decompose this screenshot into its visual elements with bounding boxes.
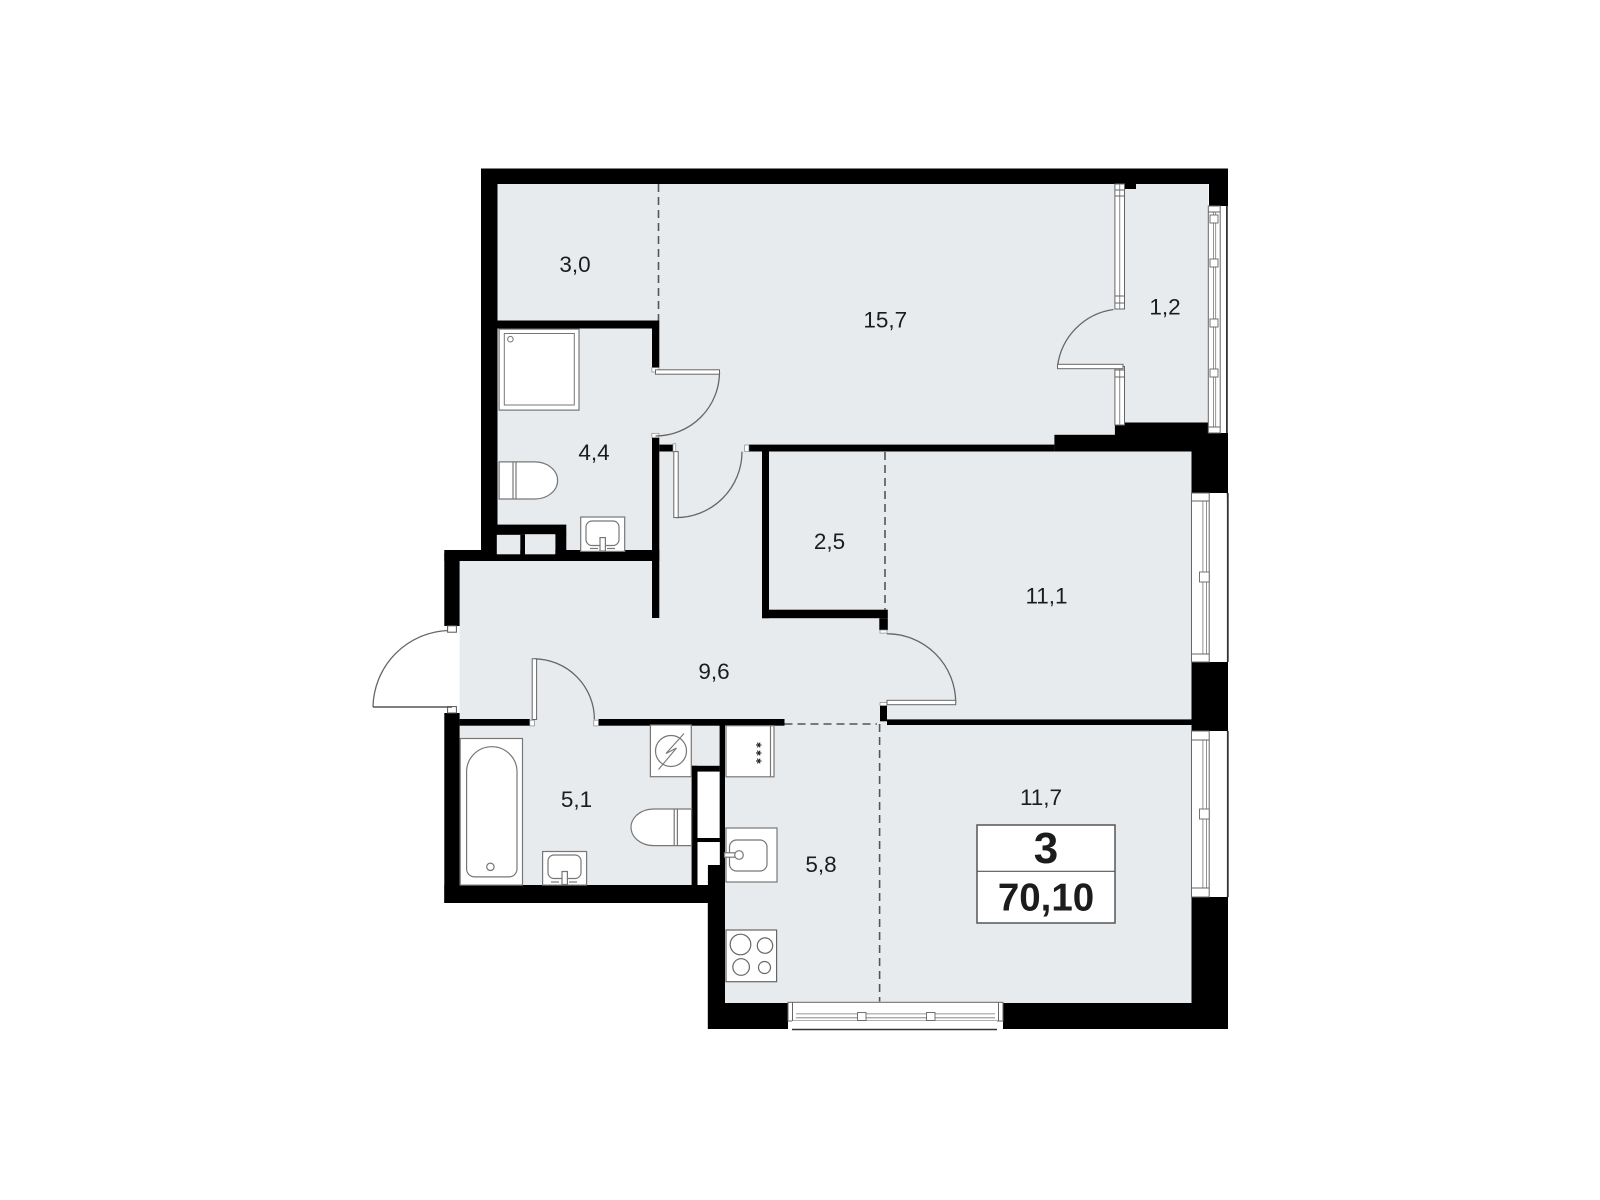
svg-text:5,1: 5,1 [561,787,592,812]
svg-text:2,5: 2,5 [814,529,845,554]
svg-text:3: 3 [1034,824,1058,873]
svg-text:4,4: 4,4 [578,440,609,465]
svg-text:1,2: 1,2 [1149,295,1180,320]
svg-text:3,0: 3,0 [559,252,590,277]
svg-text:11,7: 11,7 [1020,785,1062,810]
svg-text:15,7: 15,7 [863,308,907,333]
svg-text:70,10: 70,10 [998,877,1094,920]
svg-text:11,1: 11,1 [1025,584,1067,609]
svg-text:5,8: 5,8 [805,852,836,877]
svg-text:9,6: 9,6 [698,659,729,684]
